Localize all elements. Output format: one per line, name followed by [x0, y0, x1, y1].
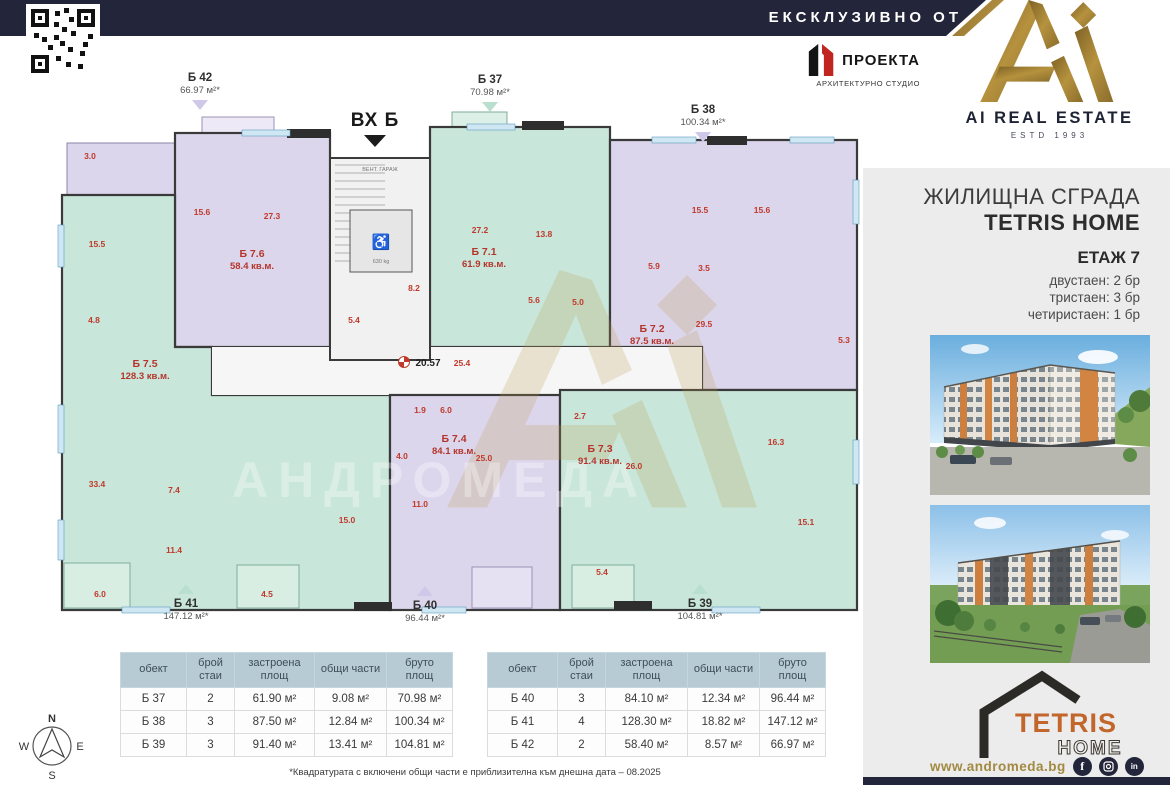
table-cell: 70.98 м² [387, 687, 453, 710]
entrance-label: ВХ Б [338, 110, 412, 147]
col-header: застроена площ [235, 653, 315, 688]
compass-rose: N E S W [14, 710, 88, 782]
area-table-left: обект брой стаи застроена площ общи част… [120, 652, 453, 757]
home-logo-text: HOME [1058, 738, 1123, 759]
table-cell: 4 [558, 710, 606, 733]
col-header: брой стаи [558, 653, 606, 688]
unit-label-area: 128.3 кв.м. [120, 371, 169, 382]
callout-pointer-icon [417, 586, 433, 596]
table-header-row: обект брой стаи застроена площ общи част… [121, 653, 453, 688]
callout-area: 104.81 м²* [645, 611, 755, 622]
table-cell: Б 41 [488, 710, 558, 733]
architect-tagline: АРХИТЕКТУРНО СТУДИО [795, 79, 920, 88]
callout-id: Б 42 [145, 72, 255, 84]
footnote: *Квадратурата с включени общи части е пр… [120, 767, 830, 778]
callout-b40: Б 40 96.44 м²* [370, 582, 480, 624]
room-area-label: 5.4 [596, 567, 608, 577]
col-header: общи части [688, 653, 760, 688]
table-cell: 100.34 м² [387, 710, 453, 733]
callout-b39: Б 39 104.81 м²* [645, 580, 755, 622]
col-header: обект [488, 653, 558, 688]
table-row: Б 414128.30 м²18.82 м²147.12 м² [488, 710, 826, 733]
table-row: Б 38387.50 м²12.84 м²100.34 м² [121, 710, 453, 733]
room-area-label: 1.9 [414, 405, 426, 415]
callout-b38: Б 38 100.34 м²* [648, 104, 758, 146]
unit-label-area: 91.4 кв.м. [578, 456, 622, 467]
room-area-label: 11.4 [166, 545, 182, 555]
room-area-label: 15.6 [194, 207, 211, 217]
table-cell: 2 [187, 687, 235, 710]
wheelchair-icon: ♿ [372, 233, 391, 251]
building-render-photo-1 [930, 335, 1150, 495]
availability-item: четиристаен: 1 бр [865, 306, 1140, 323]
architect-name: ПРОЕКТА [842, 52, 920, 69]
room-area-label: 33.4 [89, 479, 106, 489]
callout-id: Б 38 [648, 104, 758, 116]
building-name: TETRIS HOME [865, 210, 1140, 236]
callout-id: Б 40 [370, 600, 480, 612]
table-cell: 96.44 м² [760, 687, 826, 710]
room-area-label: 29.5 [696, 319, 713, 329]
callout-pointer-icon [192, 100, 208, 110]
compass-e: E [76, 741, 83, 753]
room-area-label: 6.0 [440, 405, 452, 415]
table-cell: 12.34 м² [688, 687, 760, 710]
callout-id: Б 39 [645, 598, 755, 610]
callout-id: Б 41 [131, 598, 241, 610]
unit-label-area: 58.4 кв.м. [230, 261, 274, 272]
unit-label-area: 87.5 кв.м. [630, 336, 674, 347]
table-cell: 8.57 м² [688, 733, 760, 756]
flyer-page: { "banner": { "text": "ЕКСКЛУЗИВНО ОТ" }… [0, 0, 1170, 785]
col-header: брой стаи [187, 653, 235, 688]
callout-pointer-icon [482, 102, 498, 112]
table-cell: Б 42 [488, 733, 558, 756]
room-area-label: 6.0 [94, 589, 106, 599]
room-area-label: 4.5 [261, 589, 273, 599]
room-area-label: 15.6 [754, 205, 771, 215]
instagram-icon[interactable] [1099, 757, 1118, 776]
bottom-navy-strip [863, 777, 1170, 785]
room-area-label: 5.3 [838, 335, 850, 345]
unit-label-id: Б 7.5 [132, 358, 157, 370]
table-cell: 104.81 м² [387, 733, 453, 756]
unit-label-id: Б 7.2 [639, 323, 664, 335]
exclusive-banner-label: ЕКСКЛУЗИВНО ОТ [0, 9, 962, 26]
table-cell: 12.84 м² [315, 710, 387, 733]
elevator-capacity: 630 kg [373, 259, 390, 265]
room-area-label: 13.8 [536, 229, 553, 239]
room-area-label: 11.0 [412, 499, 428, 509]
room-area-label: 26.0 [626, 461, 643, 471]
table-cell: 3 [558, 687, 606, 710]
website-link[interactable]: www.andromeda.bg [930, 759, 1066, 774]
col-header: общи части [315, 653, 387, 688]
table-cell: 87.50 м² [235, 710, 315, 733]
area-table-right: обект брой стаи застроена площ общи част… [487, 652, 826, 757]
callout-area: 96.44 м²* [370, 613, 480, 624]
ai-monogram-icon [980, 0, 1120, 102]
callout-b41: Б 41 147.12 м²* [131, 580, 241, 622]
availability-list: двустаен: 2 бр тристаен: 3 бр четиристае… [865, 272, 1140, 323]
callout-area: 70.98 м²* [435, 87, 545, 98]
room-area-label: 15.1 [798, 517, 815, 527]
room-area-label: 27.3 [264, 211, 281, 221]
col-header: обект [121, 653, 187, 688]
room-area-label: 16.3 [768, 437, 785, 447]
brand-name: AI REAL ESTATE [947, 109, 1152, 128]
floor-plan: ВЕНТ. ГАРАЖ ♿ 630 kg АНДРОМЕДА Б 7.6 58.… [52, 95, 862, 645]
table-row: Б 37261.90 м²9.08 м²70.98 м² [121, 687, 453, 710]
callout-id: Б 37 [435, 74, 545, 86]
room-area-label: 5.6 [528, 295, 540, 305]
table-cell: Б 40 [488, 687, 558, 710]
table-row: Б 39391.40 м²13.41 м²104.81 м² [121, 733, 453, 756]
facebook-icon[interactable]: f [1073, 757, 1092, 776]
qr-code [26, 4, 100, 78]
ai-real-estate-logo: AI REAL ESTATE ESTD 1993 [947, 0, 1152, 150]
callout-area: 100.34 м²* [648, 117, 758, 128]
compass-n: N [48, 713, 56, 725]
room-area-label: 3.5 [698, 263, 710, 273]
table-cell: Б 37 [121, 687, 187, 710]
compass-s: S [48, 770, 55, 782]
entrance-arrow-icon [364, 135, 386, 147]
table-cell: 147.12 м² [760, 710, 826, 733]
room-area-label: 15.5 [89, 239, 106, 249]
table-cell: 3 [187, 710, 235, 733]
table-cell: 58.40 м² [606, 733, 688, 756]
table-cell: 128.30 м² [606, 710, 688, 733]
dimension-value: 20.57 [415, 358, 440, 369]
building-title: ЖИЛИЩНА СГРАДА TETRIS HOME [865, 184, 1140, 236]
callout-pointer-icon [178, 584, 194, 594]
room-area-label: 5.9 [648, 261, 660, 271]
hall-area: 25.4 [454, 358, 471, 368]
floor-label: ЕТАЖ 7 [865, 248, 1140, 268]
room-area-label: 5.0 [572, 297, 584, 307]
table-cell: 9.08 м² [315, 687, 387, 710]
contact-row: www.andromeda.bg f in [930, 757, 1158, 776]
table-header-row: обект брой стаи застроена площ общи част… [488, 653, 826, 688]
unit-label-area: 84.1 кв.м. [432, 446, 476, 457]
linkedin-icon[interactable]: in [1125, 757, 1144, 776]
unit-label-area: 61.9 кв.м. [462, 259, 506, 270]
compass-w: W [19, 741, 30, 753]
room-area-label: 27.2 [472, 225, 489, 235]
unit-label-id: Б 7.1 [471, 246, 496, 258]
table-cell: 13.41 м² [315, 733, 387, 756]
room-area-label: 3.0 [84, 151, 96, 161]
col-header: застроена площ [606, 653, 688, 688]
table-cell: 66.97 м² [760, 733, 826, 756]
room-area-label: 25.0 [476, 453, 493, 463]
unit-label-id: Б 7.6 [239, 248, 264, 260]
room-area-label: 4.8 [88, 315, 100, 325]
callout-b42: Б 42 66.97 м²* [145, 72, 255, 114]
callout-area: 66.97 м²* [145, 85, 255, 96]
callout-area: 147.12 м²* [131, 611, 241, 622]
col-header: бруто площ [760, 653, 826, 688]
stair-core: ВЕНТ. ГАРАЖ ♿ 630 kg [330, 158, 430, 360]
table-cell: 91.40 м² [235, 733, 315, 756]
tetris-logo-text: TETRIS [1015, 708, 1117, 738]
table-cell: 2 [558, 733, 606, 756]
room-area-label: 4.0 [396, 451, 408, 461]
room-area-label: 15.5 [692, 205, 709, 215]
callout-pointer-icon [692, 584, 708, 594]
room-area-label: 5.4 [348, 315, 360, 325]
brand-estd: ESTD 1993 [947, 131, 1152, 140]
unit-label-id: Б 7.4 [441, 433, 466, 445]
availability-item: двустаен: 2 бр [865, 272, 1140, 289]
table-cell: Б 38 [121, 710, 187, 733]
table-cell: 3 [187, 733, 235, 756]
room-area-label: 7.4 [168, 485, 180, 495]
callout-pointer-icon [695, 132, 711, 142]
room-area-label: 2.7 [574, 411, 586, 421]
callout-b37: Б 37 70.98 м²* [435, 74, 545, 116]
table-row: Б 42258.40 м²8.57 м²66.97 м² [488, 733, 826, 756]
architect-logo: ПРОЕКТА АРХИТЕКТУРНО СТУДИО [795, 44, 920, 88]
col-header: бруто площ [387, 653, 453, 688]
table-row: Б 40384.10 м²12.34 м²96.44 м² [488, 687, 826, 710]
proekta-mark-icon [807, 44, 837, 76]
vent-label: ВЕНТ. ГАРАЖ [362, 167, 397, 173]
room-area-label: 8.2 [408, 283, 420, 293]
entrance-text: ВХ Б [338, 110, 412, 132]
building-type: ЖИЛИЩНА СГРАДА [865, 184, 1140, 210]
table-cell: 84.10 м² [606, 687, 688, 710]
room-area-label: 15.0 [339, 515, 356, 525]
availability-item: тристаен: 3 бр [865, 289, 1140, 306]
table-cell: 61.90 м² [235, 687, 315, 710]
unit-label-id: Б 7.3 [587, 443, 612, 455]
building-render-photo-2 [930, 505, 1150, 663]
table-cell: Б 39 [121, 733, 187, 756]
tetris-home-logo: TETRIS HOME [970, 662, 1145, 762]
table-cell: 18.82 м² [688, 710, 760, 733]
